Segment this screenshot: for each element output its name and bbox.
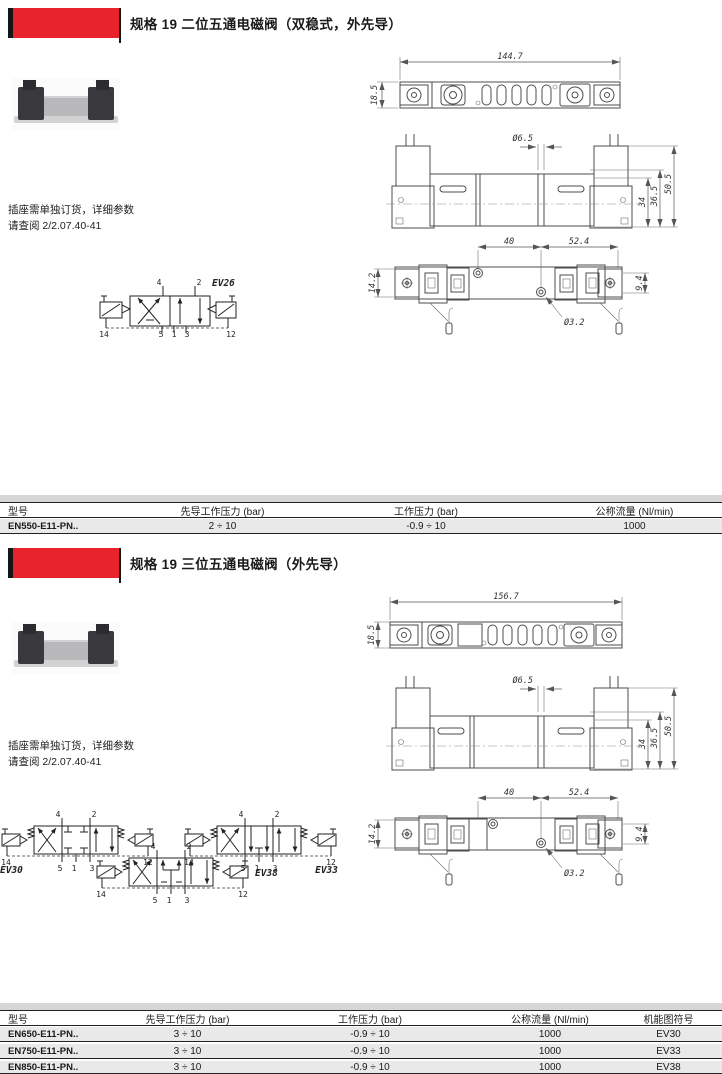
dim-h50: 50.5 xyxy=(664,716,674,736)
valve-solenoid-left xyxy=(18,87,44,120)
port-label-1: 1 xyxy=(72,864,77,873)
section2-title: 规格 19 三位五通电磁阀（外先导） xyxy=(130,553,347,573)
product-photo-2 xyxy=(12,622,120,674)
port-label-2: 2 xyxy=(197,278,202,287)
front-view-drawing-1: Ø6.5 34 36.5 50.5 xyxy=(370,130,720,240)
valve-solenoid-right xyxy=(88,631,114,664)
pneumatic-symbol-ev26: 4 2 5 1 3 14 12 EV26 xyxy=(98,276,238,338)
port-label-3: 3 xyxy=(185,896,190,905)
port-label-4: 4 xyxy=(151,842,156,851)
table2-header-model: 型号 xyxy=(0,1011,120,1026)
dim-length: 156.7 xyxy=(493,592,519,602)
table2-row-1: EN650-E11-PN.. 3 ÷ 10 -0.9 ÷ 10 1000 EV3… xyxy=(0,1027,722,1042)
table2-header-pilot-pressure: 先导工作压力 (bar) xyxy=(120,1011,255,1026)
dim-hole-top: Ø6.5 xyxy=(513,133,533,144)
pilot-pressure-cell: 3 ÷ 10 xyxy=(120,1029,255,1040)
port-label-3: 3 xyxy=(90,864,95,873)
flow-cell: 1000 xyxy=(485,1062,615,1073)
dim-h36: 36.5 xyxy=(650,728,660,749)
model-cell: EN650-E11-PN.. xyxy=(0,1029,120,1040)
dim-h34: 34 xyxy=(638,739,648,750)
ordering-note-2: 插座需单独订货，详细参数 请查阅 2/2.07.40-41 xyxy=(8,738,134,771)
top-view-drawing-1: 144.7 18.5 xyxy=(372,50,722,122)
port-label-2: 2 xyxy=(92,810,97,819)
model-cell: EN550-E11-PN.. xyxy=(0,521,140,532)
table2-header-row: 型号 先导工作压力 (bar) 工作压力 (bar) 公称流量 (Nl/min)… xyxy=(0,1011,722,1026)
symbol-cell: EV33 xyxy=(615,1046,722,1057)
table1-row: EN550-E11-PN.. 2 ÷ 10 -0.9 ÷ 10 1000 xyxy=(0,519,722,534)
note-line-1: 插座需单独订货，详细参数 xyxy=(8,738,134,754)
top-view-drawing-2: 156.7 18.5 xyxy=(372,590,722,662)
dim-length: 144.7 xyxy=(497,52,523,62)
flow-cell: 1000 xyxy=(485,1029,615,1040)
dim-hr: 9.4 xyxy=(635,826,645,841)
front-view-drawing-2: Ø6.5 34 36.5 50.5 xyxy=(370,672,720,782)
dim-w40: 40 xyxy=(504,788,514,798)
pilot-pressure-cell: 2 ÷ 10 xyxy=(140,521,305,532)
table1-header-flow: 公称流量 (Nl/min) xyxy=(547,503,722,518)
dim-hole-bottom: Ø3.2 xyxy=(564,868,584,879)
header-red-block-2 xyxy=(13,548,119,578)
dim-w40: 40 xyxy=(504,237,514,247)
table2-header-working-pressure: 工作压力 (bar) xyxy=(255,1011,485,1026)
flow-cell: 1000 xyxy=(547,521,722,532)
model-cell: EN850-E11-PN.. xyxy=(0,1062,120,1073)
table1-top-band xyxy=(0,495,722,503)
working-pressure-cell: -0.9 ÷ 10 xyxy=(255,1062,485,1073)
port-label-14: 14 xyxy=(99,330,109,339)
symbol-cell: EV30 xyxy=(615,1029,722,1040)
port-label-2: 2 xyxy=(187,842,192,851)
port-label-14: 14 xyxy=(96,890,106,899)
header-rule-2 xyxy=(119,548,121,583)
working-pressure-cell: -0.9 ÷ 10 xyxy=(305,521,547,532)
pneumatic-symbol-ev38: 4 2 5 1 3 14 12 EV38 xyxy=(95,842,280,906)
table2-row-3: EN850-E11-PN.. 3 ÷ 10 -0.9 ÷ 10 1000 EV3… xyxy=(0,1061,722,1074)
table1-header-model: 型号 xyxy=(0,503,140,518)
ordering-note-1: 插座需单独订货，详细参数 请查阅 2/2.07.40-41 xyxy=(8,202,134,235)
working-pressure-cell: -0.9 ÷ 10 xyxy=(255,1046,485,1057)
dim-hl: 14.2 xyxy=(368,273,378,293)
dim-w52: 52.4 xyxy=(569,237,589,247)
port-label-4: 4 xyxy=(157,278,162,287)
dim-w52: 52.4 xyxy=(569,788,589,798)
bottom-view-drawing-2: 40 52.4 14.2 9.4 Ø3.2 xyxy=(370,788,720,888)
dim-h50: 50.5 xyxy=(664,174,674,194)
pilot-pressure-cell: 3 ÷ 10 xyxy=(120,1062,255,1073)
table2-header-symbol: 机能图符号 xyxy=(615,1011,722,1026)
dim-hole-top: Ø6.5 xyxy=(513,675,533,686)
dim-hole-bottom: Ø3.2 xyxy=(564,317,584,328)
dim-h34: 34 xyxy=(638,197,648,208)
header-rule xyxy=(119,8,121,43)
symbol-cell: EV38 xyxy=(615,1062,722,1073)
symbol-label-ev33: EV33 xyxy=(315,865,338,876)
note-line-2: 请查阅 2/2.07.40-41 xyxy=(8,218,134,234)
port-label-1: 1 xyxy=(172,330,177,339)
port-label-5: 5 xyxy=(153,896,158,905)
valve-solenoid-right xyxy=(88,87,114,120)
product-photo-1 xyxy=(12,78,120,130)
valve-connector-right xyxy=(96,624,109,634)
valve-connector-left xyxy=(23,80,36,90)
working-pressure-cell: -0.9 ÷ 10 xyxy=(255,1029,485,1040)
valve-solenoid-left xyxy=(18,631,44,664)
port-label-5: 5 xyxy=(58,864,63,873)
dim-h36: 36.5 xyxy=(650,186,660,207)
port-label-4: 4 xyxy=(239,810,244,819)
valve-connector-right xyxy=(96,80,109,90)
section1-title: 规格 19 二位五通电磁阀（双稳式，外先导） xyxy=(130,13,402,33)
dim-hl: 14.2 xyxy=(368,824,378,844)
valve-connector-left xyxy=(23,624,36,634)
table2-header-flow: 公称流量 (Nl/min) xyxy=(485,1011,615,1026)
port-label-12: 12 xyxy=(226,330,236,339)
flow-cell: 1000 xyxy=(485,1046,615,1057)
model-cell: EN750-E11-PN.. xyxy=(0,1046,120,1057)
table2-row-2: EN750-E11-PN.. 3 ÷ 10 -0.9 ÷ 10 1000 EV3… xyxy=(0,1044,722,1059)
pilot-pressure-cell: 3 ÷ 10 xyxy=(120,1046,255,1057)
bottom-view-drawing-1: 40 52.4 14.2 9.4 Ø3.2 xyxy=(370,237,720,337)
note-line-1: 插座需单独订货，详细参数 xyxy=(8,202,134,218)
symbol-label-ev38: EV38 xyxy=(255,868,278,879)
header-red-block xyxy=(13,8,119,38)
table2-top-band xyxy=(0,1003,722,1011)
table1-header-pilot-pressure: 先导工作压力 (bar) xyxy=(140,503,305,518)
port-label-2: 2 xyxy=(275,810,280,819)
dim-height: 18.5 xyxy=(370,85,380,105)
symbol-label-ev30: EV30 xyxy=(0,865,23,876)
port-label-12: 12 xyxy=(238,890,248,899)
note-line-2: 请查阅 2/2.07.40-41 xyxy=(8,754,134,770)
port-label-1: 1 xyxy=(167,896,172,905)
port-label-4: 4 xyxy=(56,810,61,819)
table1-header-working-pressure: 工作压力 (bar) xyxy=(305,503,547,518)
dim-height: 18.5 xyxy=(367,625,377,645)
port-label-5: 5 xyxy=(159,330,164,339)
dim-hr: 9.4 xyxy=(635,275,645,290)
port-label-3: 3 xyxy=(185,330,190,339)
table1-header-row: 型号 先导工作压力 (bar) 工作压力 (bar) 公称流量 (Nl/min) xyxy=(0,503,722,518)
symbol-label-ev26: EV26 xyxy=(212,278,235,289)
